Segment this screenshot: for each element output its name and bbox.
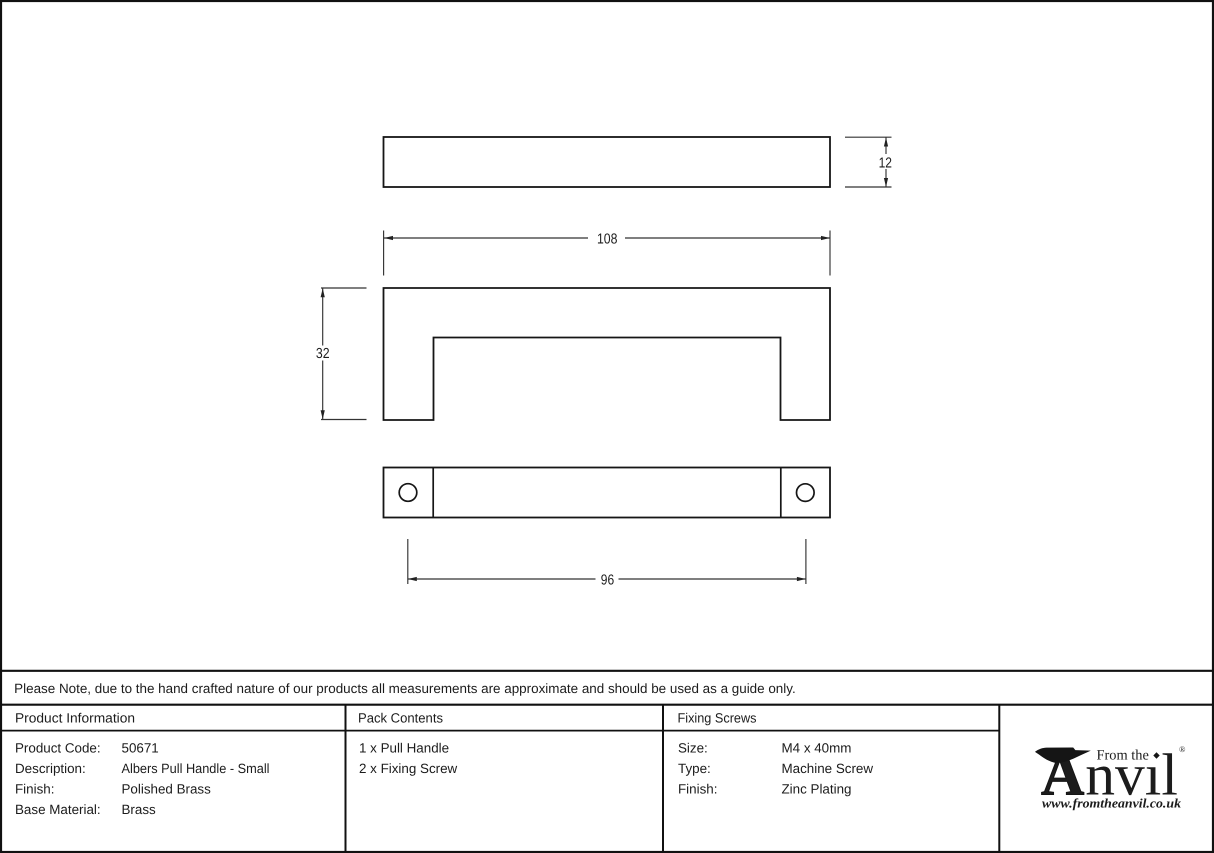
svg-text:108: 108 (597, 231, 618, 247)
svg-text:12: 12 (879, 156, 892, 172)
svg-text:Albers Pull Handle - Small: Albers Pull Handle - Small (122, 761, 270, 776)
svg-text:Product Information: Product Information (15, 711, 135, 726)
svg-text:Polished Brass: Polished Brass (122, 782, 212, 797)
svg-text:Description:: Description: (15, 761, 86, 776)
svg-text:Base Material:: Base Material: (15, 802, 101, 817)
svg-text:2 x Fixing Screw: 2 x Fixing Screw (359, 761, 458, 776)
svg-text:Product Code:: Product Code: (15, 741, 101, 756)
svg-text:96: 96 (601, 572, 614, 588)
svg-text:Fixing Screws: Fixing Screws (678, 711, 757, 726)
svg-text:1 x Pull Handle: 1 x Pull Handle (359, 741, 449, 756)
svg-text:Brass: Brass (122, 802, 157, 817)
svg-text:From the: From the (1097, 748, 1149, 764)
svg-text:Finish:: Finish: (15, 782, 54, 797)
svg-text:www.fromtheanvil.co.uk: www.fromtheanvil.co.uk (1042, 796, 1182, 811)
svg-text:50671: 50671 (122, 741, 159, 756)
svg-text:Size:: Size: (678, 741, 708, 756)
svg-text:Please Note, due to the hand c: Please Note, due to the hand crafted nat… (14, 681, 796, 696)
svg-text:Zinc Plating: Zinc Plating (782, 782, 852, 797)
svg-text:Pack Contents: Pack Contents (358, 711, 443, 726)
svg-text:Type:: Type: (678, 761, 711, 776)
svg-text:Finish:: Finish: (678, 782, 717, 797)
svg-text:32: 32 (316, 346, 330, 362)
svg-text:M4 x 40mm: M4 x 40mm (782, 741, 852, 756)
svg-text:Machine Screw: Machine Screw (782, 761, 874, 776)
svg-text:®: ® (1179, 744, 1186, 754)
